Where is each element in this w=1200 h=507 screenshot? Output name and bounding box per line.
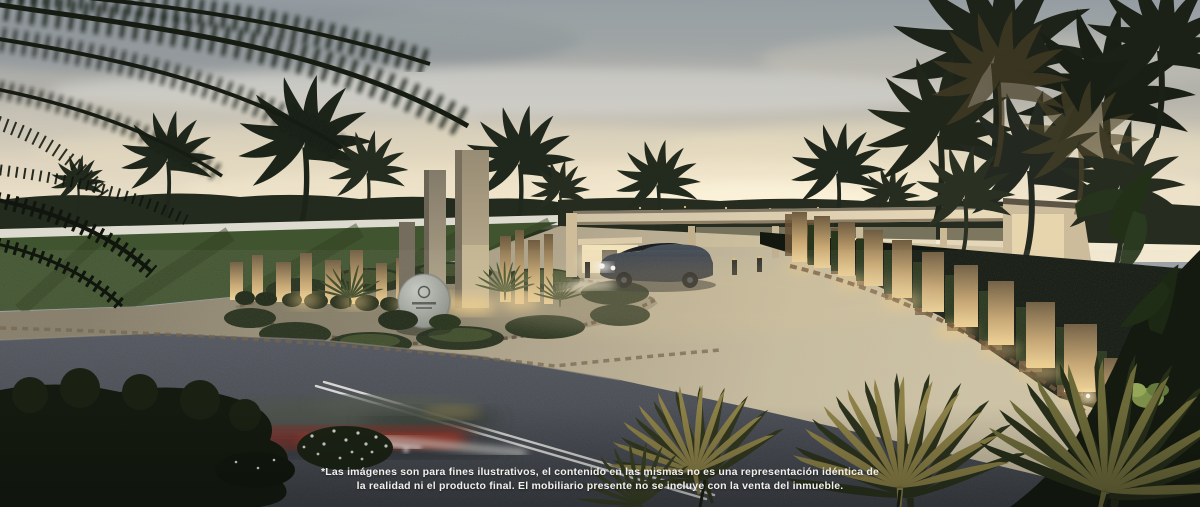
architectural-rendering: *Las imágenes son para fines ilustrativo…	[0, 0, 1200, 507]
disclaimer-line-2: la realidad ni el producto final. El mob…	[0, 480, 1200, 494]
rendering-canvas	[0, 0, 1200, 507]
disclaimer: *Las imágenes son para fines ilustrativo…	[0, 466, 1200, 493]
disclaimer-line-1: *Las imágenes son para fines ilustrativo…	[0, 466, 1200, 480]
